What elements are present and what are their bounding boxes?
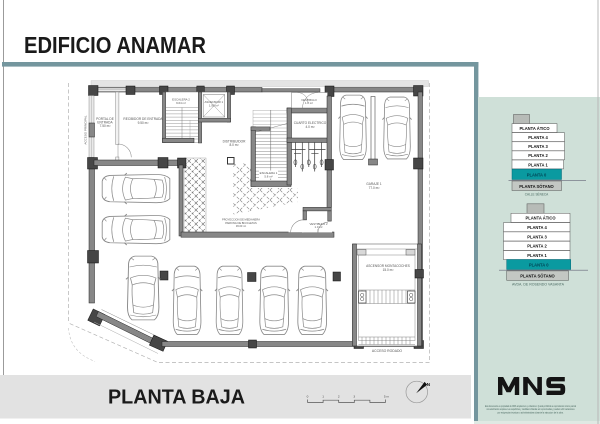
svg-text:PLANTA 4: PLANTA 4 [528,135,548,140]
svg-text:1: 1 [322,395,324,399]
svg-text:8.0 m²: 8.0 m² [229,143,238,147]
svg-text:36.00 m²: 36.00 m² [236,224,246,228]
svg-text:PLANTA ÁTICO: PLANTA ÁTICO [525,216,556,221]
svg-text:PROYECCION DE MEDIANERA: PROYECCION DE MEDIANERA [222,217,260,221]
svg-text:7.50 m²: 7.50 m² [100,124,111,128]
svg-text:15.0 m²: 15.0 m² [383,268,394,272]
svg-text:PLANTA 1: PLANTA 1 [528,162,548,167]
svg-text:PLANTA 2: PLANTA 2 [527,244,547,249]
svg-text:ACCESO RODADO: ACCESO RODADO [372,349,403,353]
svg-text:2: 2 [338,395,340,399]
svg-text:PLANTA ÁTICO: PLANTA ÁTICO [519,126,550,131]
svg-text:9.50 m²: 9.50 m² [138,121,149,125]
svg-text:0: 0 [307,395,309,399]
svg-text:por exigencias tecnicas o admi: por exigencias tecnicas o administrativa… [498,411,564,415]
svg-text:5 m: 5 m [384,395,390,399]
svg-text:PLANTA 2: PLANTA 2 [528,153,548,158]
svg-text:PLANTA 0: PLANTA 0 [529,263,549,268]
svg-text:PARKING DE BICICLETAS: PARKING DE BICICLETAS [225,221,257,225]
svg-text:Este documento es propiedad de: Este documento es propiedad de MNS arqui… [485,404,576,408]
svg-text:PLANTA 3: PLANTA 3 [527,234,547,239]
svg-text:PLANTA SÓTANO: PLANTA SÓTANO [519,184,554,189]
svg-text:ACCESO PRINCIPAL: ACCESO PRINCIPAL [84,115,88,144]
svg-text:5.8 m²: 5.8 m² [264,174,272,178]
svg-text:1.0 m²: 1.0 m² [315,225,323,229]
svg-text:AVDA. DE ROSENDO VASANTA: AVDA. DE ROSENDO VASANTA [512,283,565,287]
svg-text:3: 3 [353,395,355,399]
svg-text:PLANTA SÓTANO: PLANTA SÓTANO [520,274,555,279]
svg-text:77.0 m²: 77.0 m² [369,186,380,190]
svg-text:PLANTA BAJA: PLANTA BAJA [108,386,245,409]
svg-text:1.90 m²: 1.90 m² [209,103,219,107]
svg-text:PLANTA 1: PLANTA 1 [527,253,547,258]
svg-text:EDIFICIO ANAMAR: EDIFICIO ANAMAR [24,32,206,58]
svg-text:1.0 m²: 1.0 m² [305,101,313,105]
svg-text:CALLE SÉNECA: CALLE SÉNECA [525,191,549,196]
svg-text:9.64 m²: 9.64 m² [176,101,186,105]
svg-text:PLANTA 4: PLANTA 4 [527,225,547,230]
svg-text:PLANTA 3: PLANTA 3 [528,144,548,149]
svg-text:4.0 m²: 4.0 m² [305,125,314,129]
svg-text:PLANTA 0: PLANTA 0 [527,173,547,178]
svg-text:sin autorizacion expresa. Las: sin autorizacion expresa. Las superficie… [487,407,576,411]
